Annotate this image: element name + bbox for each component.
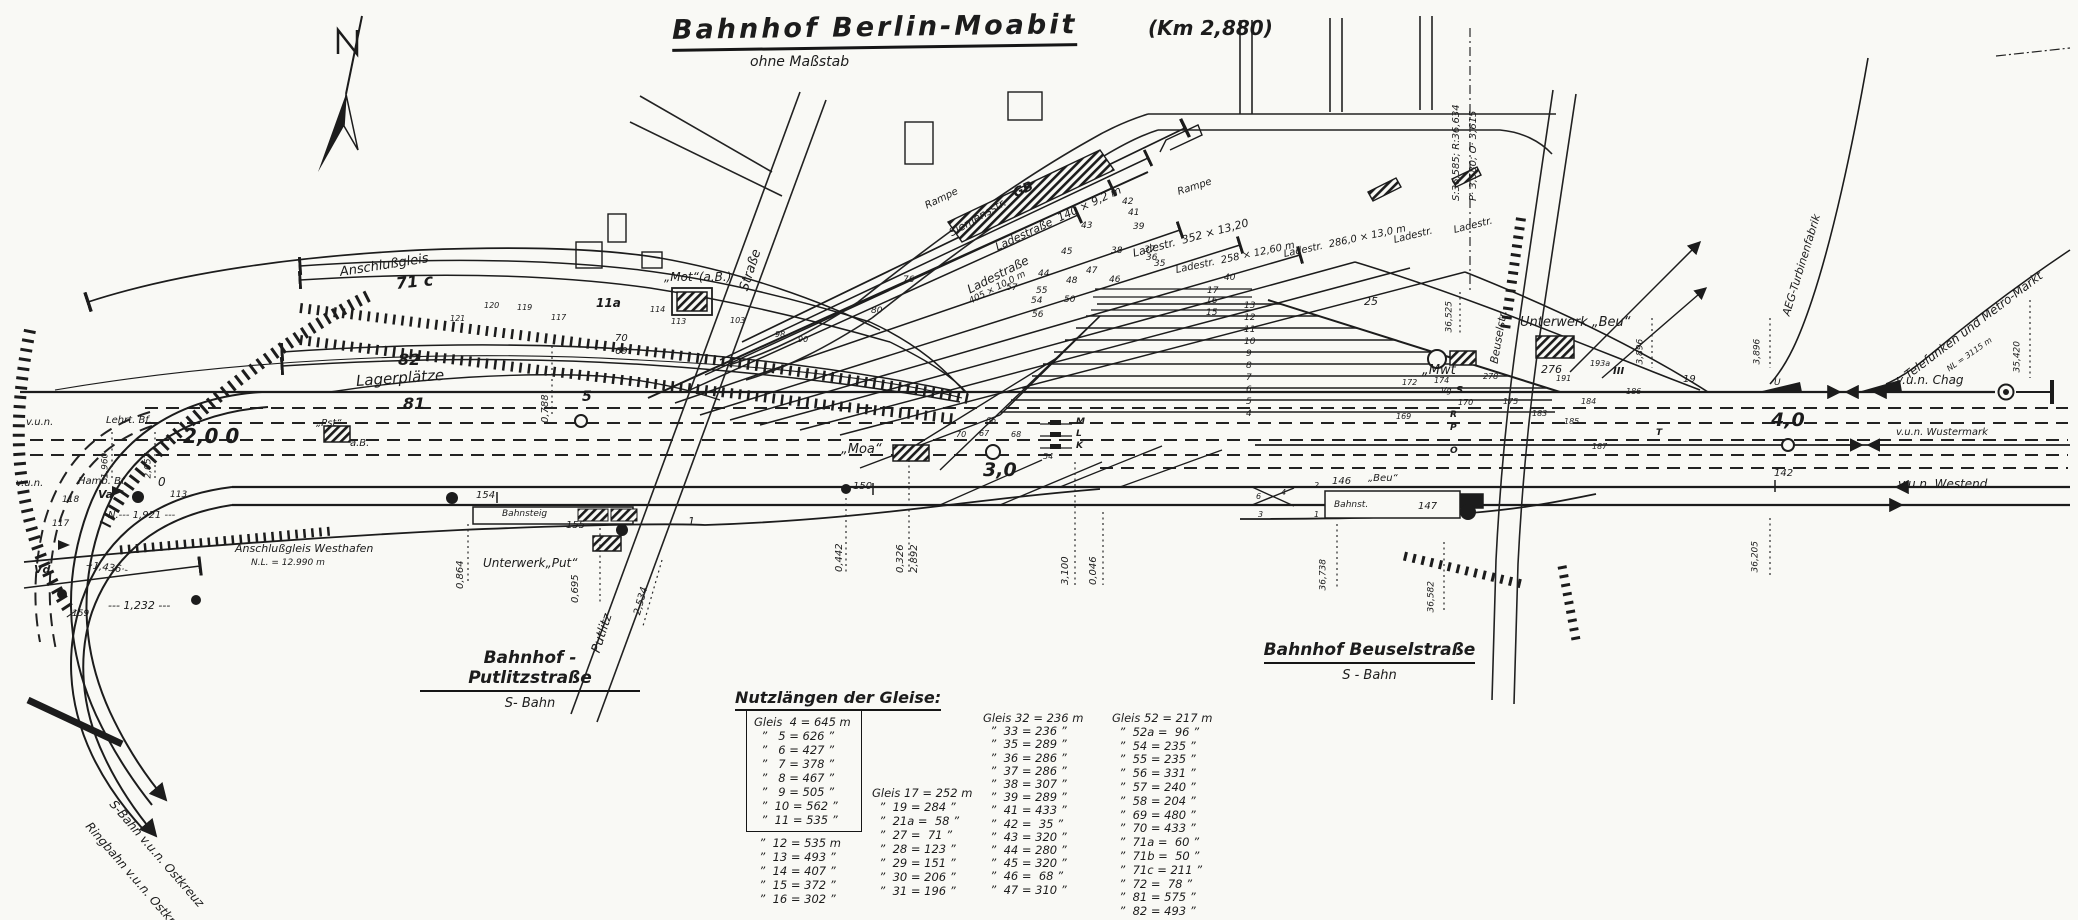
plan-label: 67 bbox=[979, 430, 989, 438]
plan-label: 66 bbox=[986, 417, 996, 425]
plan-label: 1 bbox=[1314, 511, 1319, 519]
plan-label: 170 bbox=[1458, 399, 1473, 407]
plan-label: 47 bbox=[1086, 267, 1097, 276]
plan-label: R bbox=[1450, 411, 1457, 420]
plan-label: 0,864 bbox=[456, 560, 466, 589]
plan-label: Ladestr. 258 × 12,60 m bbox=[1175, 241, 1296, 276]
plan-label: III bbox=[1613, 367, 1624, 377]
plan-label: 19 bbox=[1683, 375, 1696, 385]
plan-label: 0,695 bbox=[571, 574, 581, 603]
plan-label: 15 bbox=[1206, 309, 1217, 318]
plan-label: 172 bbox=[1402, 379, 1417, 387]
plan-label: M bbox=[1076, 418, 1085, 427]
plan-label: 114 bbox=[650, 306, 665, 314]
plan-label: 54 bbox=[1031, 297, 1042, 306]
plan-label: 36,738 bbox=[1320, 559, 1329, 591]
plan-label: Ladestr. 286,0 × 13,0 m bbox=[1283, 224, 1407, 260]
label-strasse: Straße bbox=[738, 248, 764, 293]
plan-label: 25 bbox=[1364, 296, 1378, 307]
plan-label: 4 bbox=[1246, 410, 1252, 419]
label-anschlussgleis-westhafen: Anschlußgleis Westhafen bbox=[235, 543, 373, 554]
plan-label: 38 bbox=[1111, 247, 1122, 256]
plan-label: v.u.n. bbox=[26, 418, 53, 428]
station-beusselstrasse-name: Bahnhof Beuselstraße bbox=[1264, 640, 1476, 664]
label-hamburger-bf: Hamb. Bf. bbox=[78, 477, 127, 487]
plan-label: 0,788 bbox=[541, 394, 551, 423]
plan-label: --- 1,232 --- bbox=[108, 600, 170, 611]
station-putlitzstrasse: Bahnhof - Putlitzstraße S- Bahn bbox=[420, 648, 640, 711]
track-lengths-title: Nutzlängen der Gleise: bbox=[735, 688, 941, 711]
station-beusselstrasse: Bahnhof Beuselstraße S - Bahn bbox=[1262, 640, 1477, 683]
plan-label: 113 bbox=[671, 318, 686, 326]
label-unterwerk-beu: Unterwerk „Beu“ bbox=[1520, 316, 1630, 329]
track-lengths-col3: Gleis 32 = 236 m ” 33 = 236 ” ” 35 = 289… bbox=[983, 712, 1083, 897]
plan-label: 5 bbox=[1246, 398, 1252, 407]
plan-label: 39 bbox=[1133, 223, 1144, 232]
station-putlitzstrasse-name: Bahnhof - Putlitzstraße bbox=[420, 648, 640, 692]
label-unterwerk-put: Unterwerk„Put“ bbox=[483, 557, 577, 569]
plan-label: 169 bbox=[1396, 413, 1411, 421]
plan-label: 68 bbox=[1011, 431, 1021, 439]
plan-label: 142 bbox=[1774, 469, 1793, 479]
plan-label: 44 bbox=[1038, 270, 1049, 279]
plan-label: 50 bbox=[1064, 296, 1075, 305]
plan-label: 3 bbox=[1258, 511, 1263, 519]
plan-label: 11 bbox=[1244, 326, 1255, 335]
plan-label: 1 bbox=[688, 516, 695, 527]
plan-label: 6 bbox=[1246, 386, 1252, 395]
plan-label: 36,205 bbox=[1752, 541, 1761, 573]
plan-label: O bbox=[1450, 447, 1458, 456]
plan-label: 71 c bbox=[395, 272, 434, 292]
plan-label: 81 bbox=[403, 396, 425, 412]
plan-label: 42 bbox=[1122, 198, 1133, 207]
plan-label: 98 bbox=[775, 331, 785, 339]
plan-label: 17 bbox=[1207, 287, 1218, 296]
plan-label: 0,442 bbox=[835, 543, 845, 572]
plan-label: S:36,585; R:36,634 bbox=[1452, 104, 1462, 201]
plan-label: Vd bbox=[34, 564, 50, 575]
plan-label: 40 bbox=[1224, 274, 1235, 283]
plan-label: 6 bbox=[1256, 493, 1261, 501]
plan-label: 11a bbox=[596, 297, 621, 309]
label-bahnsteig-beussel: Bahnst. bbox=[1334, 501, 1368, 510]
label-telefunken-metro-markt: Telefunken und Metro-Markt bbox=[1902, 269, 2044, 380]
plan-label: 193a bbox=[1590, 360, 1610, 368]
plan-label: 0 bbox=[158, 476, 166, 488]
plan-label: Va bbox=[98, 489, 113, 500]
plan-label: 35 bbox=[1154, 260, 1165, 269]
label-beusselstrasse: Beuselstr. bbox=[1489, 309, 1509, 364]
plan-label: 41 bbox=[1128, 209, 1139, 218]
plan-label: 155 bbox=[566, 521, 585, 531]
plan-label: 90 bbox=[798, 336, 808, 344]
km-post-4: 4,0 bbox=[1771, 411, 1805, 430]
plan-label: 117 bbox=[52, 520, 69, 529]
plan-label: -·1,436·- bbox=[85, 561, 128, 576]
plan-label: 3,896 bbox=[1754, 339, 1763, 365]
plan-label: Rampe bbox=[1176, 177, 1213, 197]
plan-label: 2 bbox=[1314, 482, 1319, 490]
plan-label: N.--- 1,921 --- bbox=[108, 511, 175, 521]
label-siemensstrasse: Siemensstr. bbox=[947, 197, 1008, 239]
plan-label: 55 bbox=[1036, 287, 1047, 296]
track-lengths-col4: Gleis 52 = 217 m ” 52a = 96 ” ” 54 = 235… bbox=[1112, 712, 1212, 919]
label-gueterboden: GB bbox=[1011, 180, 1035, 200]
plan-label: 175 bbox=[1503, 398, 1518, 406]
label-bahnsteig-putlitz: Bahnsteig bbox=[502, 510, 547, 519]
plan-label: U bbox=[1774, 379, 1781, 388]
label-lagerplaetze: Lagerplätze bbox=[355, 368, 444, 389]
plan-label: Ladestr. bbox=[1453, 217, 1494, 236]
plan-label: S bbox=[1456, 386, 1463, 396]
plan-label: 186 bbox=[1626, 388, 1641, 396]
plan-label: L bbox=[1076, 430, 1082, 439]
track-lengths-col1-rest: ” 12 = 535 m ” 13 = 493 ” ” 14 = 407 ” ”… bbox=[752, 836, 841, 906]
plan-label: 120 bbox=[484, 302, 499, 310]
plan-label: 70 bbox=[956, 431, 966, 439]
plan-label: 48 bbox=[1066, 277, 1077, 286]
plan-label: 113 bbox=[170, 491, 187, 500]
plan-label: 187 bbox=[1592, 443, 1607, 451]
plan-label: 35,420 bbox=[2014, 341, 2023, 373]
plan-label: 12 bbox=[1244, 314, 1255, 323]
plan-label: 154 bbox=[476, 491, 495, 501]
plan-label: Rampe bbox=[924, 187, 960, 211]
plan-label: 3,896 bbox=[1637, 339, 1646, 365]
track-lengths-col2: Gleis 17 = 252 m ” 19 = 284 ” ” 21a = 58… bbox=[872, 786, 972, 898]
label-lehrter-bf: Lehrt. Bf. bbox=[106, 416, 152, 426]
station-beusselstrasse-type: S - Bahn bbox=[1342, 668, 1397, 683]
plan-label: 4 bbox=[1281, 489, 1286, 497]
plan-label: 2,057 bbox=[145, 453, 154, 479]
plan-label: 36,582 bbox=[1428, 581, 1437, 613]
km-post-2: 2,0 0 bbox=[183, 426, 239, 446]
plan-label: 57 bbox=[1006, 284, 1017, 293]
plan-label: 118 bbox=[62, 496, 79, 505]
plan-label: 45 bbox=[1061, 248, 1072, 257]
plan-label: 0,046 bbox=[1089, 556, 1099, 585]
plan-label: 13 bbox=[1244, 302, 1255, 311]
label-vun-wustermark: v.u.n. Wustermark bbox=[1896, 428, 1988, 438]
plan-label: N.L. = 12.990 m bbox=[251, 559, 325, 568]
plan-label: a.B. bbox=[350, 439, 369, 449]
plan-label: 1,960 bbox=[102, 453, 111, 479]
plan-title: Bahnhof Berlin-Moabit bbox=[672, 9, 1078, 52]
plan-label: 121 bbox=[450, 315, 465, 323]
plan-label: 82 bbox=[398, 352, 420, 368]
label-aeg-turbinenfabrik: AEG-Turbinenfabrik bbox=[1781, 213, 1822, 317]
track-lengths-col1-boxed: Gleis 4 = 645 m ” 5 = 626 ” ” 6 = 427 ” … bbox=[746, 710, 862, 832]
plan-label: 117 bbox=[551, 314, 566, 322]
plan-label: 69 bbox=[615, 347, 628, 357]
label-stellwerk-beu: „Beu“ bbox=[1368, 474, 1398, 484]
label-stellwerk-pst: „Pst“ bbox=[316, 419, 342, 429]
plan-label: 3,100 bbox=[1061, 556, 1071, 585]
gleisplan-page: Bahnhof Berlin-Moabit (Km 2,880) ohne Ma… bbox=[0, 0, 2078, 920]
plan-label: Vg bbox=[1441, 387, 1452, 395]
plan-subtitle: ohne Maßstab bbox=[750, 54, 849, 70]
plan-label: 16 bbox=[1206, 297, 1217, 306]
plan-title-km: (Km 2,880) bbox=[1148, 16, 1273, 40]
plan-label: 7 bbox=[1246, 374, 1252, 383]
label-stellwerk-mot: „Mot“(a.B.) bbox=[664, 271, 731, 283]
plan-label: 185 bbox=[1564, 418, 1579, 426]
plan-label: 0,326 bbox=[896, 544, 906, 573]
plan-label: 147 bbox=[1418, 502, 1437, 512]
plan-label: 54 bbox=[1043, 453, 1053, 461]
plan-label: 191 bbox=[1556, 375, 1571, 383]
label-stellwerk-moa: „Moa“ bbox=[841, 443, 882, 456]
plan-label: 46 bbox=[1109, 276, 1120, 285]
plan-label: 9 bbox=[1246, 350, 1252, 359]
plan-label: 70 bbox=[615, 334, 628, 344]
plan-label: 43 bbox=[1081, 222, 1092, 231]
plan-label: 278 bbox=[1483, 373, 1498, 381]
plan-label: v.u.n. bbox=[16, 479, 43, 489]
plan-label: 76 bbox=[903, 276, 914, 285]
plan-label: 2,534 bbox=[633, 586, 650, 616]
label-vun-westend: v.u.n. Westend bbox=[1898, 478, 1987, 490]
station-putlitzstrasse-type: S- Bahn bbox=[505, 696, 555, 711]
plan-label: 8 bbox=[1246, 362, 1252, 371]
plan-label: 174 bbox=[1434, 377, 1449, 385]
plan-label: P· 3,580; O· 3,615 bbox=[1469, 111, 1479, 201]
km-post-3: 3,0 bbox=[983, 461, 1017, 480]
plan-label: 36,525 bbox=[1446, 301, 1455, 333]
plan-label: 146 bbox=[1332, 477, 1351, 487]
plan-label: 183 bbox=[1532, 410, 1547, 418]
plan-label: 56 bbox=[1032, 311, 1043, 320]
plan-label: 184 bbox=[1581, 398, 1596, 406]
plan-label: 80 bbox=[871, 307, 882, 316]
plan-label: 150 bbox=[853, 482, 872, 492]
plan-label: 10 bbox=[1244, 338, 1255, 347]
plan-label: 103 bbox=[730, 317, 745, 325]
plan-label: T bbox=[1656, 429, 1662, 438]
plan-label: 159 bbox=[72, 610, 89, 619]
plan-label: P bbox=[1450, 424, 1457, 433]
plan-label: 119 bbox=[517, 304, 532, 312]
plan-label: 2,892 bbox=[910, 544, 920, 573]
plan-label: K bbox=[1076, 442, 1083, 451]
plan-label: 5 bbox=[582, 390, 592, 404]
